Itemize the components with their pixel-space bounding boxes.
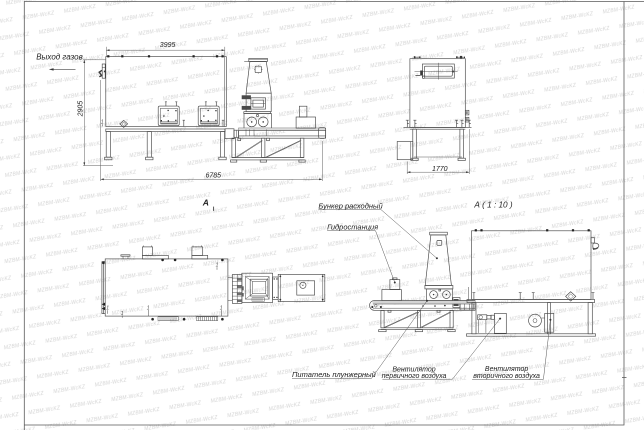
svg-text:Гидростанция: Гидростанция [327,222,378,231]
svg-text:первичного воздуха: первичного воздуха [382,372,447,380]
svg-text:Бункер расходный: Бункер расходный [318,201,383,210]
svg-text:1770: 1770 [432,166,448,173]
svg-text:А ( 1 : 10 ): А ( 1 : 10 ) [473,200,512,209]
svg-text:3995: 3995 [160,42,176,49]
svg-text:Вентилятор: Вентилятор [485,366,528,373]
svg-text:А: А [202,198,209,208]
svg-text:Выход газов: Выход газов [36,52,83,61]
svg-text:вторичного воздуха: вторичного воздуха [473,372,540,380]
svg-text:2905: 2905 [78,101,85,118]
svg-text:Питатель плунжерный: Питатель плунжерный [292,370,377,379]
svg-text:6785: 6785 [206,172,222,179]
